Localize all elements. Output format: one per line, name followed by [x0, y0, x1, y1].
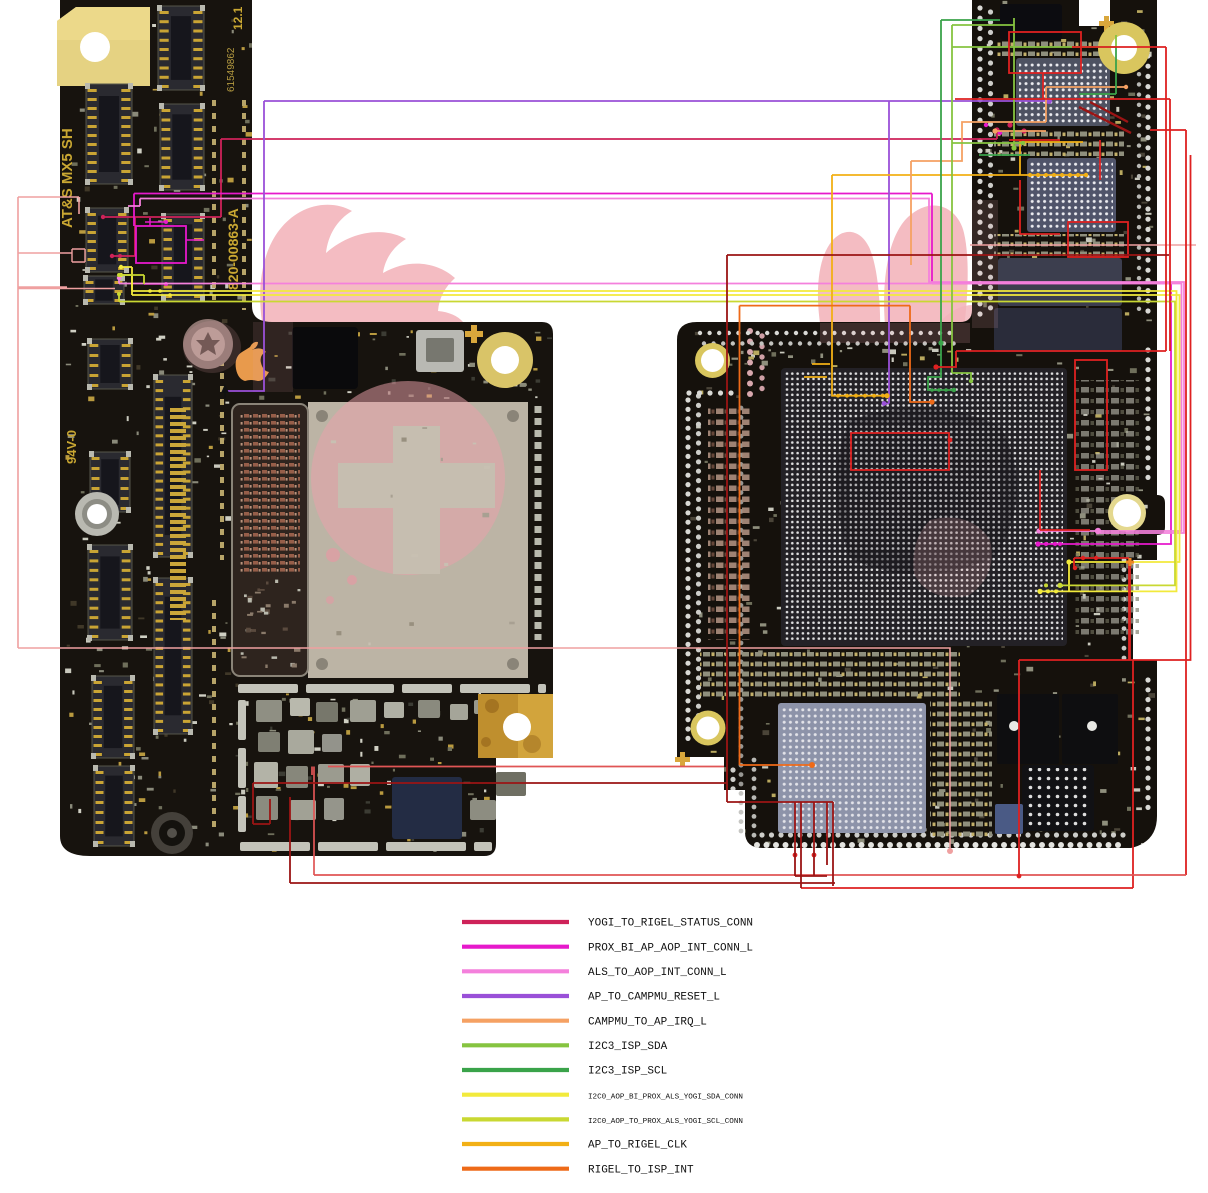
svg-text:PROX_BI_AP_AOP_INT_CONN_L: PROX_BI_AP_AOP_INT_CONN_L — [588, 942, 753, 954]
svg-text:I2C0_AOP_BI_PROX_ALS_YOGI_SDA_: I2C0_AOP_BI_PROX_ALS_YOGI_SDA_CONN — [588, 1093, 743, 1101]
svg-text:AT&S MX5 SH: AT&S MX5 SH — [59, 128, 76, 228]
svg-text:I2C0_AOP_TO_PROX_ALS_YOGI_SCL_: I2C0_AOP_TO_PROX_ALS_YOGI_SCL_CONN — [588, 1118, 743, 1126]
svg-text:I2C3_ISP_SDA: I2C3_ISP_SDA — [588, 1041, 668, 1053]
svg-text:AP_TO_RIGEL_CLK: AP_TO_RIGEL_CLK — [588, 1140, 687, 1152]
svg-text:ALS_TO_AOP_INT_CONN_L: ALS_TO_AOP_INT_CONN_L — [588, 967, 727, 979]
svg-text:61549862: 61549862 — [226, 47, 237, 92]
svg-text:I2C3_ISP_SCL: I2C3_ISP_SCL — [588, 1066, 667, 1078]
svg-text:YOGI_TO_RIGEL_STATUS_CONN: YOGI_TO_RIGEL_STATUS_CONN — [588, 918, 753, 930]
svg-text:94V-0: 94V-0 — [64, 430, 79, 464]
svg-text:RIGEL_TO_ISP_INT: RIGEL_TO_ISP_INT — [588, 1164, 694, 1176]
svg-text:820-00863-A: 820-00863-A — [225, 208, 241, 290]
svg-text:12.1: 12.1 — [231, 6, 245, 30]
svg-text:AP_TO_CAMPMU_RESET_L: AP_TO_CAMPMU_RESET_L — [588, 992, 720, 1004]
svg-text:CAMPMU_TO_AP_IRQ_L: CAMPMU_TO_AP_IRQ_L — [588, 1016, 707, 1028]
